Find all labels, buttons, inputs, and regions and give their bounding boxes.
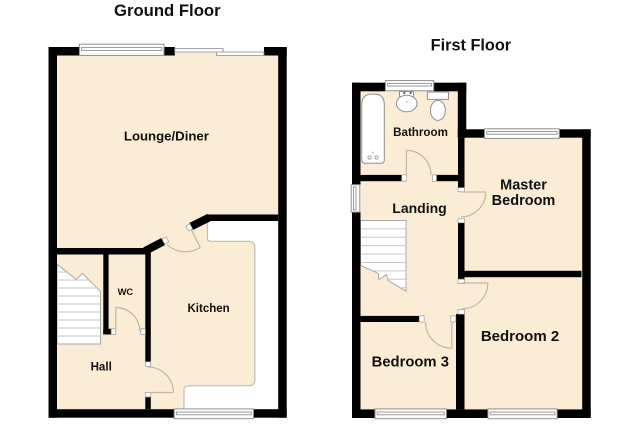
svg-text:Kitchen: Kitchen: [188, 303, 230, 315]
svg-text:Master: Master: [500, 178, 547, 194]
svg-text:Bedroom: Bedroom: [492, 193, 556, 209]
svg-text:WC: WC: [118, 286, 134, 297]
svg-text:Bedroom 3: Bedroom 3: [372, 355, 449, 371]
svg-text:Bedroom 2: Bedroom 2: [481, 328, 559, 345]
svg-text:Hall: Hall: [91, 361, 112, 374]
svg-text:Ground Floor: Ground Floor: [114, 1, 221, 20]
svg-text:Lounge/Diner: Lounge/Diner: [124, 129, 209, 144]
svg-text:Bathroom: Bathroom: [393, 126, 448, 139]
svg-text:Landing: Landing: [392, 200, 446, 216]
svg-text:First Floor: First Floor: [431, 37, 512, 55]
